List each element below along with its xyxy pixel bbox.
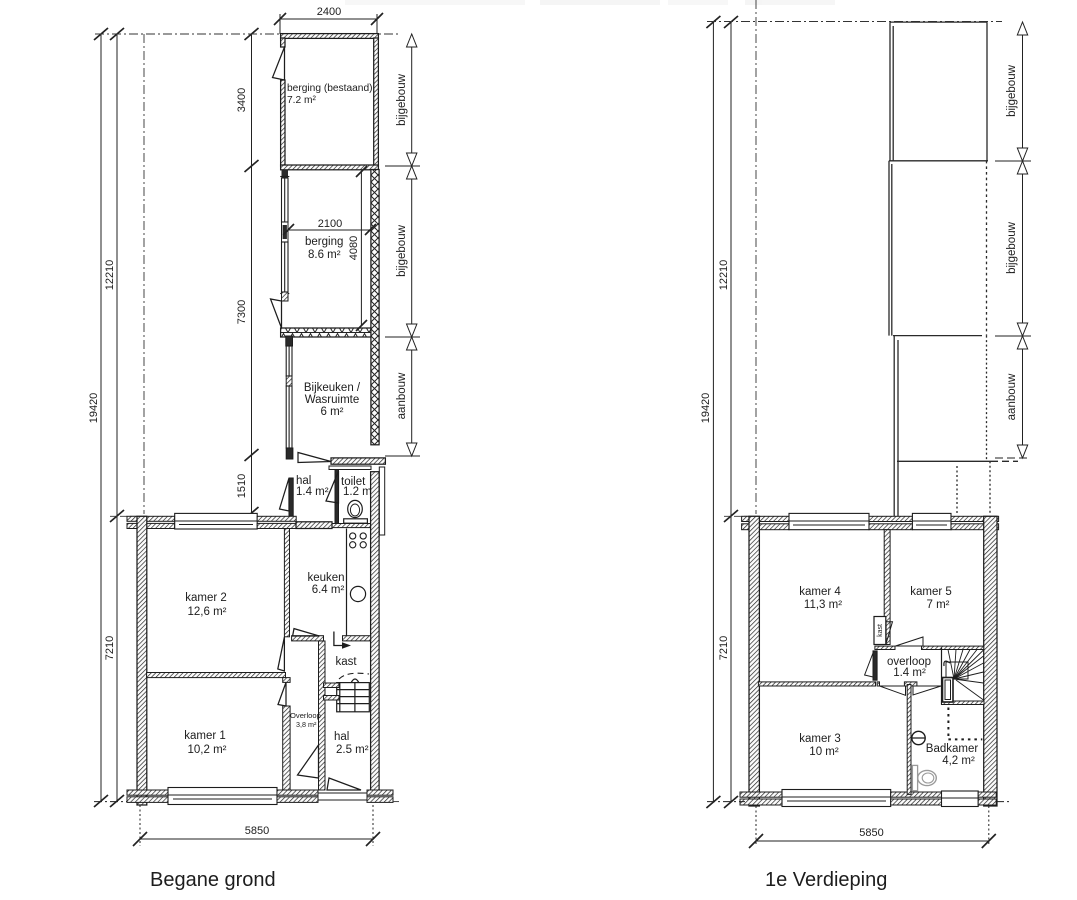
svg-text:7210: 7210 (718, 636, 730, 660)
svg-text:aanbouw: aanbouw (1006, 373, 1018, 420)
svg-text:berging (bestaand): berging (bestaand) (287, 83, 373, 94)
svg-text:2400: 2400 (317, 6, 341, 18)
svg-text:Badkamer: Badkamer (926, 743, 979, 755)
svg-text:bijgebouw: bijgebouw (396, 224, 408, 276)
svg-text:hal: hal (334, 731, 349, 743)
svg-text:12210: 12210 (104, 260, 116, 291)
svg-text:Overloop: Overloop (290, 711, 321, 720)
svg-text:3,8 m²: 3,8 m² (296, 720, 317, 729)
svg-text:Wasruimte: Wasruimte (305, 394, 360, 406)
svg-text:19420: 19420 (700, 393, 712, 424)
svg-text:5850: 5850 (859, 827, 883, 839)
svg-text:1510: 1510 (236, 474, 248, 498)
svg-text:6.4 m²: 6.4 m² (312, 584, 345, 596)
svg-text:bijgebouw: bijgebouw (396, 73, 408, 125)
svg-text:2.5 m²: 2.5 m² (336, 744, 369, 756)
svg-text:10 m²: 10 m² (809, 746, 839, 758)
svg-text:11,3 m²: 11,3 m² (804, 599, 842, 611)
svg-text:bijgebouw: bijgebouw (1006, 221, 1018, 273)
svg-text:8.6 m²: 8.6 m² (308, 249, 341, 261)
svg-text:kast: kast (877, 624, 884, 637)
svg-text:Begane grond: Begane grond (150, 869, 276, 891)
svg-text:12,6 m²: 12,6 m² (188, 606, 227, 618)
svg-text:2100: 2100 (318, 218, 342, 230)
svg-text:7210: 7210 (104, 636, 116, 660)
svg-text:3400: 3400 (236, 88, 248, 112)
svg-text:keuken: keuken (307, 572, 344, 584)
svg-text:kamer 5: kamer 5 (910, 586, 952, 598)
svg-text:1.4 m²: 1.4 m² (296, 486, 329, 498)
svg-text:7.2 m²: 7.2 m² (287, 95, 316, 106)
svg-text:4,2 m²: 4,2 m² (942, 755, 975, 767)
svg-text:7 m²: 7 m² (927, 599, 950, 611)
svg-text:4080: 4080 (348, 236, 360, 260)
svg-text:10,2 m²: 10,2 m² (188, 744, 227, 756)
svg-text:6 m²: 6 m² (321, 406, 344, 418)
svg-text:7300: 7300 (236, 300, 248, 324)
svg-text:1e Verdieping: 1e Verdieping (765, 869, 887, 891)
svg-text:aanbouw: aanbouw (396, 372, 408, 419)
svg-text:Bijkeuken /: Bijkeuken / (304, 382, 361, 394)
svg-text:1.4 m²: 1.4 m² (893, 667, 926, 679)
svg-text:kamer 2: kamer 2 (185, 592, 227, 604)
svg-text:kast: kast (335, 656, 357, 668)
svg-text:kamer 3: kamer 3 (799, 733, 841, 745)
svg-text:19420: 19420 (88, 393, 100, 424)
svg-text:kamer 1: kamer 1 (184, 730, 226, 742)
svg-text:12210: 12210 (718, 260, 730, 291)
svg-text:5850: 5850 (245, 825, 269, 837)
svg-text:berging: berging (305, 236, 343, 248)
svg-text:kamer 4: kamer 4 (799, 586, 841, 598)
svg-text:bijgebouw: bijgebouw (1006, 64, 1018, 116)
